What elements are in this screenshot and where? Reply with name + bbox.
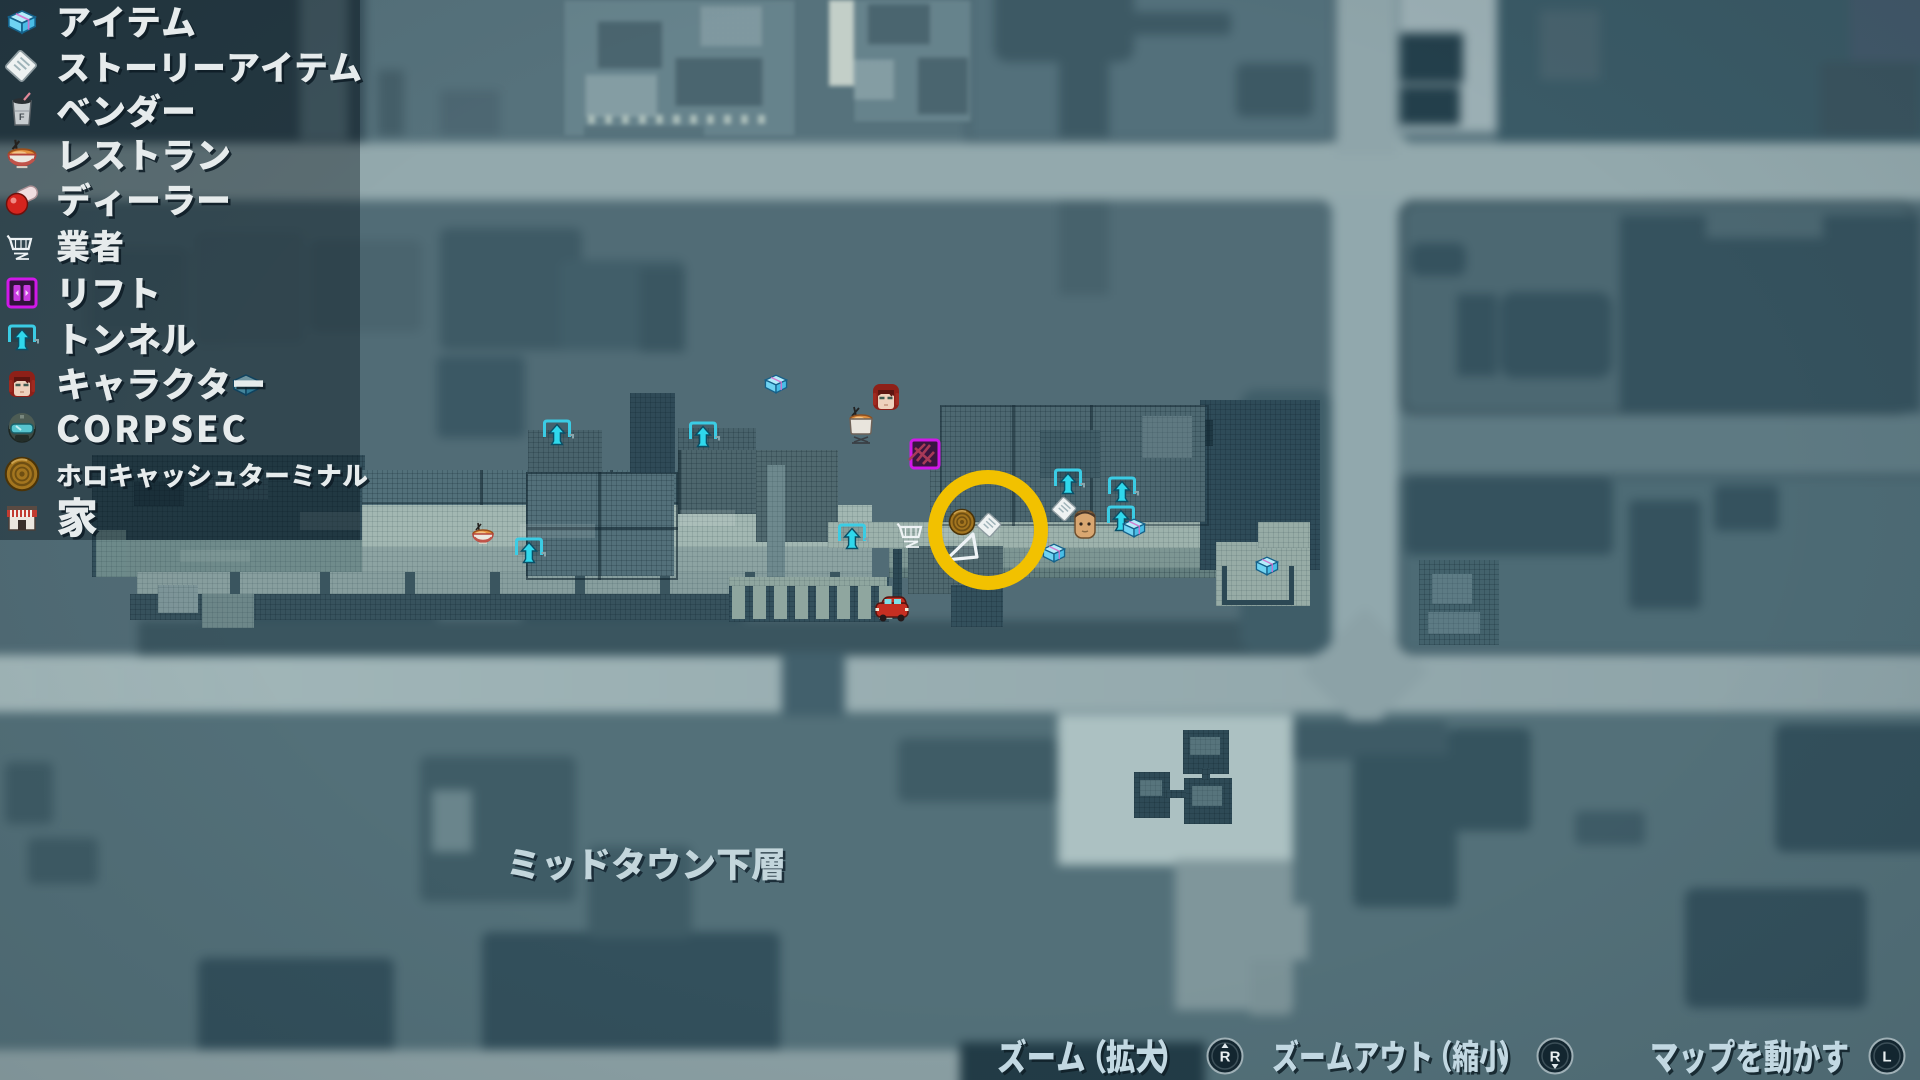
svg-text:R: R [1220,1049,1231,1066]
svg-text:R: R [1550,1049,1561,1066]
svg-text:L: L [1882,1049,1891,1066]
